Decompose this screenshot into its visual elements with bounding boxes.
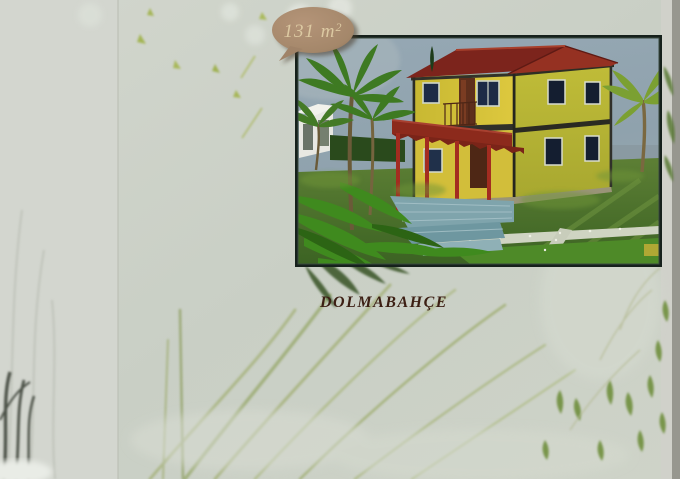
svg-text:131 m2: 131 m2 bbox=[284, 20, 343, 42]
